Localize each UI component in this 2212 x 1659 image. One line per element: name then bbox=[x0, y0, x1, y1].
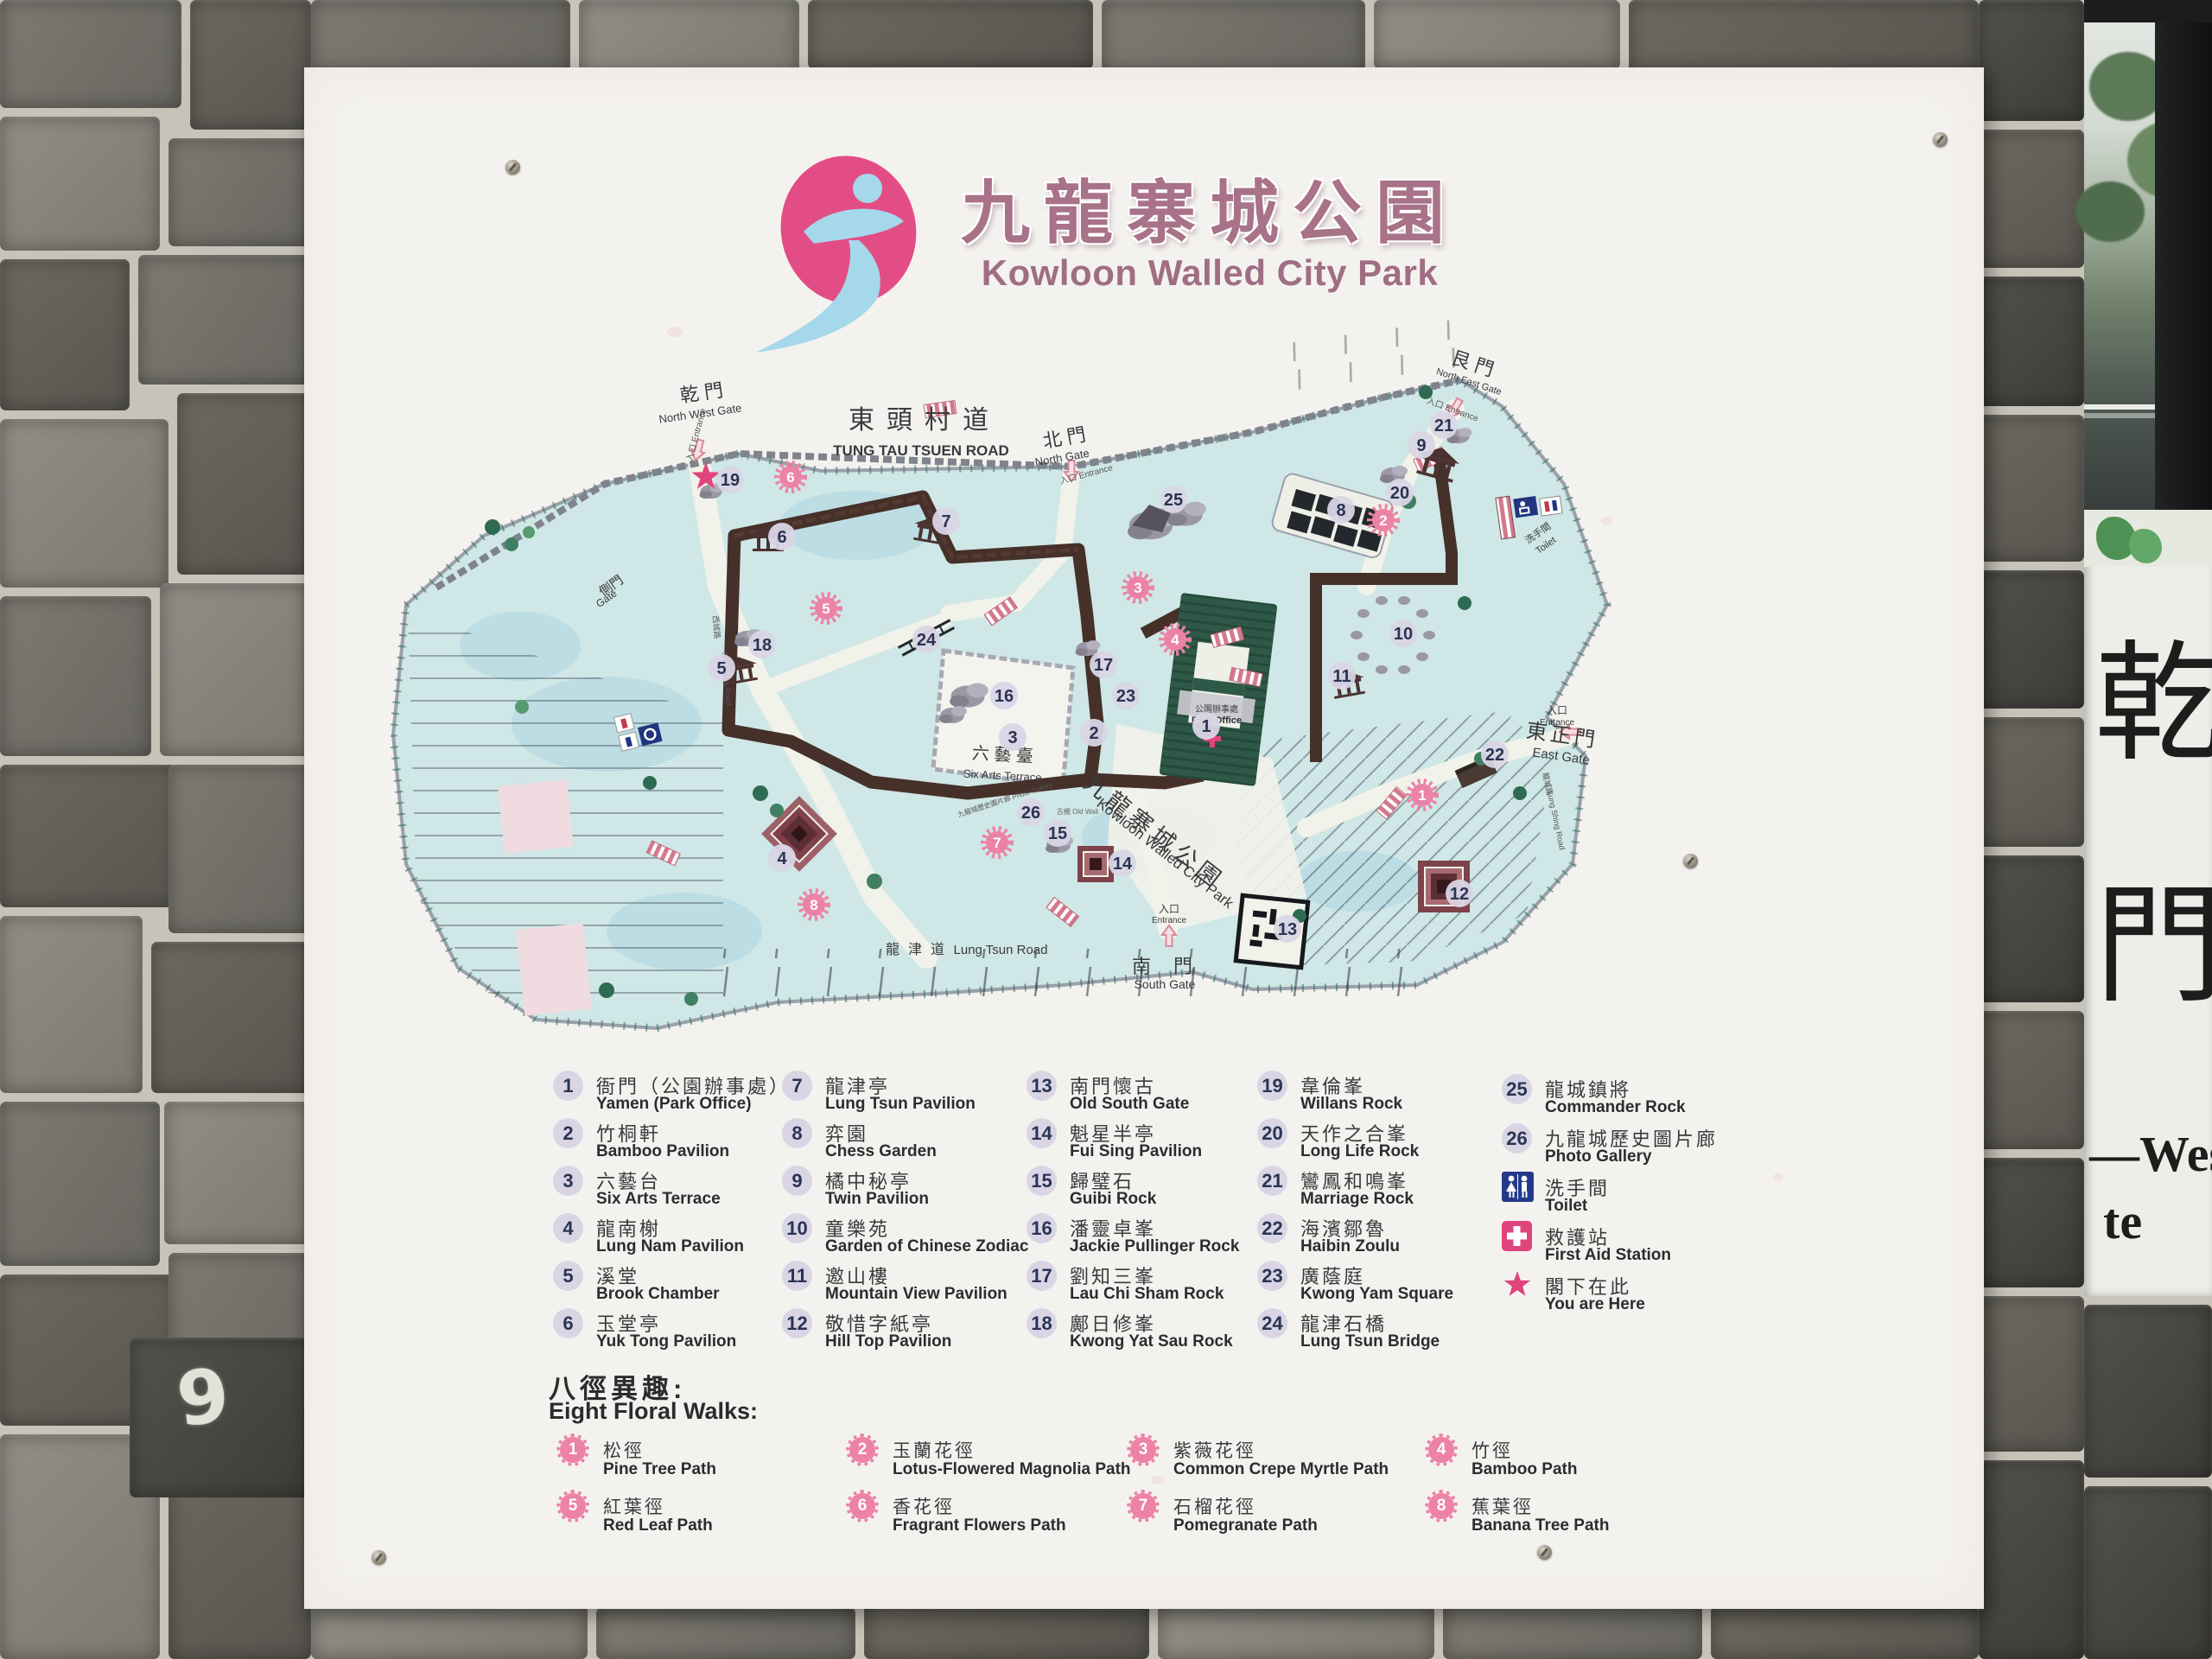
side-sign-character: 門 bbox=[2094, 881, 2212, 1011]
svg-text:23: 23 bbox=[1116, 687, 1135, 706]
stone-block bbox=[1979, 1460, 2084, 1659]
stone-block bbox=[0, 419, 168, 588]
legend-en: Jackie Pullinger Rock bbox=[1070, 1237, 1239, 1256]
stone-block bbox=[596, 1607, 855, 1659]
graffiti-number: 9 bbox=[173, 1352, 233, 1444]
park-map-sign-board: 九龍寨城公園 Kowloon Walled City Park bbox=[304, 67, 1984, 1609]
svg-text:2: 2 bbox=[1089, 724, 1098, 743]
stone-block bbox=[1979, 415, 2084, 562]
svg-text:1: 1 bbox=[1418, 787, 1426, 804]
svg-text:17: 17 bbox=[1094, 656, 1113, 675]
screw bbox=[505, 160, 520, 175]
dark-post bbox=[2155, 0, 2212, 522]
stone-block bbox=[168, 138, 311, 246]
floral-walk-en: Banana Tree Path bbox=[1471, 1516, 1609, 1535]
floral-walk-item-3: 3紫薇花徑Common Crepe Myrtle Path bbox=[1128, 1437, 1414, 1489]
floral-walk-number: 6 bbox=[849, 1493, 875, 1519]
legend-item-22: 22海濱鄒魯Haibin Zoulu bbox=[1257, 1217, 1495, 1262]
legend-en: Marriage Rock bbox=[1300, 1190, 1414, 1209]
legend-en: Kwong Yat Sau Rock bbox=[1070, 1332, 1233, 1351]
legend-item-23: 23廣蔭庭Kwong Yam Square bbox=[1257, 1265, 1495, 1310]
stone-block bbox=[0, 916, 143, 1093]
floral-walk-number: 3 bbox=[1130, 1437, 1156, 1463]
legend-en: Twin Pavilion bbox=[825, 1190, 929, 1209]
floral-walk-item-4: 4竹徑Bamboo Path bbox=[1427, 1437, 1712, 1489]
stone-block bbox=[1979, 1296, 2084, 1452]
map-marker-19: 19 bbox=[716, 466, 744, 493]
legend-en: Mountain View Pavilion bbox=[825, 1285, 1007, 1304]
legend-number: 20 bbox=[1257, 1118, 1287, 1148]
map-label: Entrance bbox=[1540, 718, 1574, 728]
map-marker-20: 20 bbox=[1386, 479, 1414, 506]
floral-walk-zh: 香花徑 bbox=[893, 1493, 955, 1519]
floral-walk-item-5: 5紅葉徑Red Leaf Path bbox=[558, 1493, 843, 1545]
floral-walk-zh: 紫薇花徑 bbox=[1173, 1437, 1256, 1463]
stone-block bbox=[0, 1102, 160, 1266]
legend-item-2: 2竹桐軒Bamboo Pavilion bbox=[553, 1122, 791, 1167]
stone-block bbox=[311, 1603, 588, 1659]
legend-item-20: 20天作之合峯Long Life Rock bbox=[1257, 1122, 1495, 1167]
facility-en: First Aid Station bbox=[1545, 1246, 1671, 1265]
svg-text:26: 26 bbox=[1021, 804, 1040, 823]
legend-item-6: 6玉堂亭Yuk Tong Pavilion bbox=[553, 1313, 791, 1357]
svg-text:20: 20 bbox=[1390, 484, 1409, 503]
stone-block bbox=[138, 255, 311, 385]
map-label: 古柵 Old Wall bbox=[1057, 807, 1098, 816]
floral-walk-en: Pomegranate Path bbox=[1173, 1516, 1318, 1535]
stone-block bbox=[1979, 276, 2084, 406]
stone-block bbox=[1102, 0, 1365, 76]
legend-number: 6 bbox=[553, 1308, 583, 1338]
svg-text:11: 11 bbox=[1332, 667, 1351, 686]
map-marker-4: 4 bbox=[768, 844, 796, 872]
svg-text:14: 14 bbox=[1113, 855, 1133, 874]
map-marker-24: 24 bbox=[912, 626, 940, 653]
legend-item-26: 26九龍城歷史圖片廊Photo Gallery bbox=[1502, 1128, 1739, 1173]
stone-block bbox=[1979, 1158, 2084, 1287]
stone-block bbox=[0, 765, 177, 907]
svg-text:2: 2 bbox=[1379, 512, 1387, 529]
svg-text:24: 24 bbox=[917, 631, 937, 650]
floral-walk-zh: 石榴花徑 bbox=[1173, 1493, 1256, 1519]
stone-block bbox=[160, 583, 311, 756]
svg-text:18: 18 bbox=[753, 636, 772, 655]
legend-en: Old South Gate bbox=[1070, 1095, 1189, 1114]
building-block bbox=[516, 923, 592, 1016]
legend-en: Garden of Chinese Zodiac bbox=[825, 1237, 1028, 1256]
legend-number: 5 bbox=[553, 1261, 583, 1291]
legend-item-19: 19韋倫峯Willans Rock bbox=[1257, 1075, 1495, 1120]
legend-item-8: 8弈園Chess Garden bbox=[782, 1122, 1020, 1167]
floral-walks-title-en: Eight Floral Walks: bbox=[549, 1398, 758, 1425]
legend-en: Guibi Rock bbox=[1070, 1190, 1156, 1209]
side-sign-english: —West bbox=[2089, 1125, 2212, 1183]
svg-text:12: 12 bbox=[1450, 885, 1469, 904]
stone-block bbox=[1979, 570, 2084, 709]
map-marker-17: 17 bbox=[1090, 651, 1117, 678]
legend-en: Lung Tsun Pavilion bbox=[825, 1095, 976, 1114]
map-marker-12: 12 bbox=[1446, 880, 1473, 907]
stone-block bbox=[1979, 855, 2084, 1002]
floral-walk-zh: 松徑 bbox=[603, 1437, 645, 1463]
legend-item-11: 11邀山樓Mountain View Pavilion bbox=[782, 1265, 1020, 1310]
svg-text:6: 6 bbox=[786, 469, 794, 486]
legend-number: 17 bbox=[1027, 1261, 1057, 1291]
legend-en: Fui Sing Pavilion bbox=[1070, 1142, 1202, 1161]
map-label: 南 門 bbox=[1132, 956, 1201, 977]
legend-item-16: 16潘靈卓峯Jackie Pullinger Rock bbox=[1027, 1217, 1264, 1262]
legend-number: 13 bbox=[1027, 1071, 1057, 1101]
map-marker-5: 5 bbox=[708, 654, 735, 682]
legend-en: Haibin Zoulu bbox=[1300, 1237, 1400, 1256]
map-marker-14: 14 bbox=[1109, 849, 1136, 877]
floral-walk-zh: 竹徑 bbox=[1471, 1437, 1513, 1463]
floral-walk-number: 2 bbox=[849, 1437, 875, 1463]
legend-item-1: 1衙門（公園辦事處）Yamen (Park Office) bbox=[553, 1075, 791, 1120]
stone-block bbox=[164, 1102, 311, 1244]
svg-text:15: 15 bbox=[1048, 824, 1067, 843]
legend-en: Lau Chi Sham Rock bbox=[1070, 1285, 1224, 1304]
legend-en: Kwong Yam Square bbox=[1300, 1285, 1453, 1304]
floral-walk-en: Lotus-Flowered Magnolia Path bbox=[893, 1460, 1131, 1479]
map-label: 東頭村道 bbox=[849, 406, 1001, 435]
legend-en: Chess Garden bbox=[825, 1142, 937, 1161]
stone-block bbox=[1629, 0, 1979, 73]
legend-item-24: 24龍津石橋Lung Tsun Bridge bbox=[1257, 1313, 1495, 1357]
legend-en: Yamen (Park Office) bbox=[596, 1095, 752, 1114]
map-marker-21: 21 bbox=[1430, 411, 1458, 439]
map-marker-15: 15 bbox=[1044, 819, 1071, 847]
map-label: TUNG TAU TSUEN ROAD bbox=[833, 442, 1009, 459]
legend-item-7: 7龍津亭Lung Tsun Pavilion bbox=[782, 1075, 1020, 1120]
floral-walk-en: Common Crepe Myrtle Path bbox=[1173, 1460, 1389, 1479]
you-are-here-star-icon bbox=[1502, 1270, 1535, 1301]
map-marker-22: 22 bbox=[1481, 741, 1509, 768]
screw bbox=[1933, 132, 1948, 147]
floral-walk-number: 5 bbox=[560, 1493, 586, 1519]
map-marker-9: 9 bbox=[1408, 431, 1435, 459]
svg-text:5: 5 bbox=[716, 659, 726, 678]
floral-walk-number: 4 bbox=[1428, 1437, 1454, 1463]
tree-foliage bbox=[2075, 181, 2145, 242]
svg-text:5: 5 bbox=[822, 601, 829, 617]
legend-number: 22 bbox=[1257, 1213, 1287, 1243]
svg-text:7: 7 bbox=[941, 512, 950, 531]
legend-number: 1 bbox=[553, 1071, 583, 1101]
legend-en: Willans Rock bbox=[1300, 1095, 1402, 1114]
map-label: 龍津道 bbox=[886, 942, 953, 957]
facility-toilet: 洗手間Toilet bbox=[1502, 1177, 1739, 1222]
stone-block bbox=[1443, 1600, 1702, 1659]
legend-item-4: 4龍南榭Lung Nam Pavilion bbox=[553, 1217, 791, 1262]
legend-en: Brook Chamber bbox=[596, 1285, 720, 1304]
stone-block bbox=[1374, 0, 1620, 69]
first-aid-icon bbox=[1502, 1221, 1535, 1252]
legend-item-21: 21鸞鳳和鳴峯Marriage Rock bbox=[1257, 1170, 1495, 1215]
legend-number: 15 bbox=[1027, 1166, 1057, 1196]
floral-walk-zh: 玉蘭花徑 bbox=[893, 1437, 976, 1463]
side-sign-english: te bbox=[2103, 1192, 2142, 1250]
map-marker-13: 13 bbox=[1274, 915, 1301, 943]
svg-text:6: 6 bbox=[777, 528, 786, 547]
building-block bbox=[498, 779, 574, 854]
legend-item-18: 18鄺日修峯Kwong Yat Sau Rock bbox=[1027, 1313, 1264, 1357]
floral-walk-en: Red Leaf Path bbox=[603, 1516, 713, 1535]
svg-text:9: 9 bbox=[1416, 436, 1426, 455]
legend-item-5: 5溪堂Brook Chamber bbox=[553, 1265, 791, 1310]
stone-block bbox=[2084, 1305, 2212, 1478]
svg-text:3: 3 bbox=[1134, 580, 1141, 596]
map-label: 乾 門 bbox=[678, 379, 724, 407]
legend-number: 8 bbox=[782, 1118, 812, 1148]
floral-walk-zh: 蕉葉徑 bbox=[1471, 1493, 1534, 1519]
map-label: 入口 bbox=[1547, 704, 1567, 716]
side-sign-character: 乾 bbox=[2094, 639, 2212, 769]
legend-number: 9 bbox=[782, 1166, 812, 1196]
stone-block bbox=[0, 596, 151, 756]
legend-item-25: 25龍城鎮將Commander Rock bbox=[1502, 1078, 1739, 1123]
map-label: South Gate bbox=[1135, 977, 1196, 991]
screw bbox=[372, 1550, 386, 1565]
facility-en: Toilet bbox=[1545, 1197, 1587, 1216]
floral-walk-number: 1 bbox=[560, 1437, 586, 1463]
floral-walk-item-7: 7石榴花徑Pomegranate Path bbox=[1128, 1493, 1414, 1545]
fui-sing-pavilion-structure bbox=[1077, 846, 1114, 882]
legend-item-10: 10童樂苑Garden of Chinese Zodiac bbox=[782, 1217, 1020, 1262]
legend-number: 24 bbox=[1257, 1308, 1287, 1338]
legend-en: Six Arts Terrace bbox=[596, 1190, 721, 1209]
map-marker-6: 6 bbox=[768, 523, 796, 550]
photo-of-park-map-sign: 9 乾 門 —West te bbox=[0, 0, 2212, 1659]
floral-walk-en: Bamboo Path bbox=[1471, 1460, 1577, 1479]
svg-text:8: 8 bbox=[1336, 501, 1345, 520]
floral-walk-item-1: 1松徑Pine Tree Path bbox=[558, 1437, 843, 1489]
toilet-icon bbox=[1502, 1172, 1535, 1203]
legend-number: 14 bbox=[1027, 1118, 1057, 1148]
legend-number: 2 bbox=[553, 1118, 583, 1148]
legend-en: Commander Rock bbox=[1545, 1098, 1686, 1117]
legend-item-14: 14魁星半亭Fui Sing Pavilion bbox=[1027, 1122, 1264, 1167]
floral-walk-zh: 紅葉徑 bbox=[603, 1493, 665, 1519]
map-label: 六 藝 臺 bbox=[971, 743, 1033, 766]
floral-walk-item-8: 8蕉葉徑Banana Tree Path bbox=[1427, 1493, 1712, 1545]
stone-block bbox=[0, 117, 160, 251]
map-marker-26: 26 bbox=[1017, 798, 1045, 826]
svg-text:7: 7 bbox=[993, 835, 1001, 851]
stone-block bbox=[1979, 717, 2084, 847]
legend-number: 7 bbox=[782, 1071, 812, 1101]
stone-block bbox=[1979, 130, 2084, 268]
stone-block bbox=[151, 942, 311, 1093]
legend-en: Lung Tsun Bridge bbox=[1300, 1332, 1440, 1351]
legend-item-12: 12敬惜字紙亭Hill Top Pavilion bbox=[782, 1313, 1020, 1357]
floral-walk-en: Fragrant Flowers Path bbox=[893, 1516, 1066, 1535]
legend-number: 12 bbox=[782, 1308, 812, 1338]
map-marker-8: 8 bbox=[1327, 496, 1355, 524]
legend-en: Long Life Rock bbox=[1300, 1142, 1419, 1161]
map-marker-11: 11 bbox=[1328, 662, 1356, 690]
map-marker-7: 7 bbox=[932, 507, 960, 535]
facility-en: You are Here bbox=[1545, 1295, 1645, 1314]
legend-number: 3 bbox=[553, 1166, 583, 1196]
map-label: 入口 bbox=[1159, 903, 1179, 915]
legend-number: 16 bbox=[1027, 1213, 1057, 1243]
legend-en: Bamboo Pavilion bbox=[596, 1142, 729, 1161]
legend-item-3: 3六藝台Six Arts Terrace bbox=[553, 1170, 791, 1215]
facility-you-are-here-star: 閣下在此You are Here bbox=[1502, 1275, 1739, 1320]
legend-en: Photo Gallery bbox=[1545, 1147, 1652, 1166]
stone-block bbox=[311, 0, 570, 76]
map-marker-25: 25 bbox=[1160, 486, 1187, 513]
legend-item-13: 13南門懷古Old South Gate bbox=[1027, 1075, 1264, 1120]
stone-block bbox=[1979, 1011, 2084, 1149]
floral-walk-en: Pine Tree Path bbox=[603, 1460, 716, 1479]
stone-block bbox=[168, 765, 311, 933]
floral-walk-item-6: 6香花徑Fragrant Flowers Path bbox=[848, 1493, 1133, 1545]
legend-number: 11 bbox=[782, 1261, 812, 1291]
legend-number: 26 bbox=[1502, 1123, 1532, 1154]
stone-block bbox=[177, 393, 311, 575]
map-label: Entrance bbox=[1152, 916, 1186, 925]
legend-item-15: 15歸璧石Guibi Rock bbox=[1027, 1170, 1264, 1215]
facility-first-aid: 救護站First Aid Station bbox=[1502, 1226, 1739, 1271]
svg-text:13: 13 bbox=[1278, 920, 1297, 939]
screw bbox=[1537, 1545, 1552, 1560]
map-marker-18: 18 bbox=[748, 631, 776, 658]
partial-gate-sign: 乾 門 —West te bbox=[2084, 510, 2212, 1296]
stone-block bbox=[1711, 1605, 1979, 1659]
map-marker-23: 23 bbox=[1112, 682, 1140, 709]
svg-text:21: 21 bbox=[1434, 416, 1453, 435]
legend-item-17: 17劉知三峯Lau Chi Sham Rock bbox=[1027, 1265, 1264, 1310]
legend-number: 21 bbox=[1257, 1166, 1287, 1196]
map-marker-1: 1 bbox=[1192, 712, 1220, 740]
svg-text:16: 16 bbox=[995, 687, 1014, 706]
legend-number: 25 bbox=[1502, 1074, 1532, 1104]
legend-item-9: 9橘中秘亭Twin Pavilion bbox=[782, 1170, 1020, 1215]
side-sign-top-band bbox=[2084, 510, 2212, 567]
floral-walk-number: 7 bbox=[1130, 1493, 1156, 1519]
stone-block bbox=[0, 259, 130, 410]
stone-block bbox=[808, 0, 1093, 69]
legend-number: 19 bbox=[1257, 1071, 1287, 1101]
legend-en: Yuk Tong Pavilion bbox=[596, 1332, 736, 1351]
legend-number: 23 bbox=[1257, 1261, 1287, 1291]
map-marker-3: 3 bbox=[999, 723, 1027, 751]
map-label: Lung Tsun Road bbox=[954, 943, 1048, 957]
map-marker-10: 10 bbox=[1389, 620, 1417, 647]
legend-number: 10 bbox=[782, 1213, 812, 1243]
legend-number: 4 bbox=[553, 1213, 583, 1243]
stone-block bbox=[190, 0, 311, 130]
svg-text:25: 25 bbox=[1164, 491, 1183, 510]
stone-block bbox=[2084, 1486, 2212, 1659]
park-map: 東頭村道TUNG TAU TSUEN ROAD乾 門North West Gat… bbox=[391, 240, 1911, 1104]
stone-block bbox=[1158, 1605, 1434, 1659]
svg-text:10: 10 bbox=[1394, 625, 1413, 644]
svg-text:19: 19 bbox=[721, 471, 740, 490]
svg-text:4: 4 bbox=[1171, 632, 1179, 648]
map-marker-16: 16 bbox=[990, 682, 1018, 709]
svg-text:3: 3 bbox=[1007, 728, 1017, 747]
floral-walk-item-2: 2玉蘭花徑Lotus-Flowered Magnolia Path bbox=[848, 1437, 1133, 1489]
south-bank-hatch bbox=[719, 949, 1427, 999]
svg-text:1: 1 bbox=[1201, 717, 1211, 736]
legend-en: Lung Nam Pavilion bbox=[596, 1237, 744, 1256]
map-marker-2: 2 bbox=[1080, 719, 1108, 747]
floral-walk-number: 8 bbox=[1428, 1493, 1454, 1519]
door-lintel bbox=[2084, 0, 2212, 22]
svg-text:22: 22 bbox=[1485, 746, 1504, 765]
legend-en: Hill Top Pavilion bbox=[825, 1332, 951, 1351]
leaf-graphic bbox=[2129, 529, 2162, 563]
stone-block bbox=[1979, 0, 2084, 121]
legend-number: 18 bbox=[1027, 1308, 1057, 1338]
svg-text:8: 8 bbox=[810, 897, 817, 913]
svg-text:4: 4 bbox=[777, 849, 787, 868]
stone-block bbox=[0, 0, 181, 108]
